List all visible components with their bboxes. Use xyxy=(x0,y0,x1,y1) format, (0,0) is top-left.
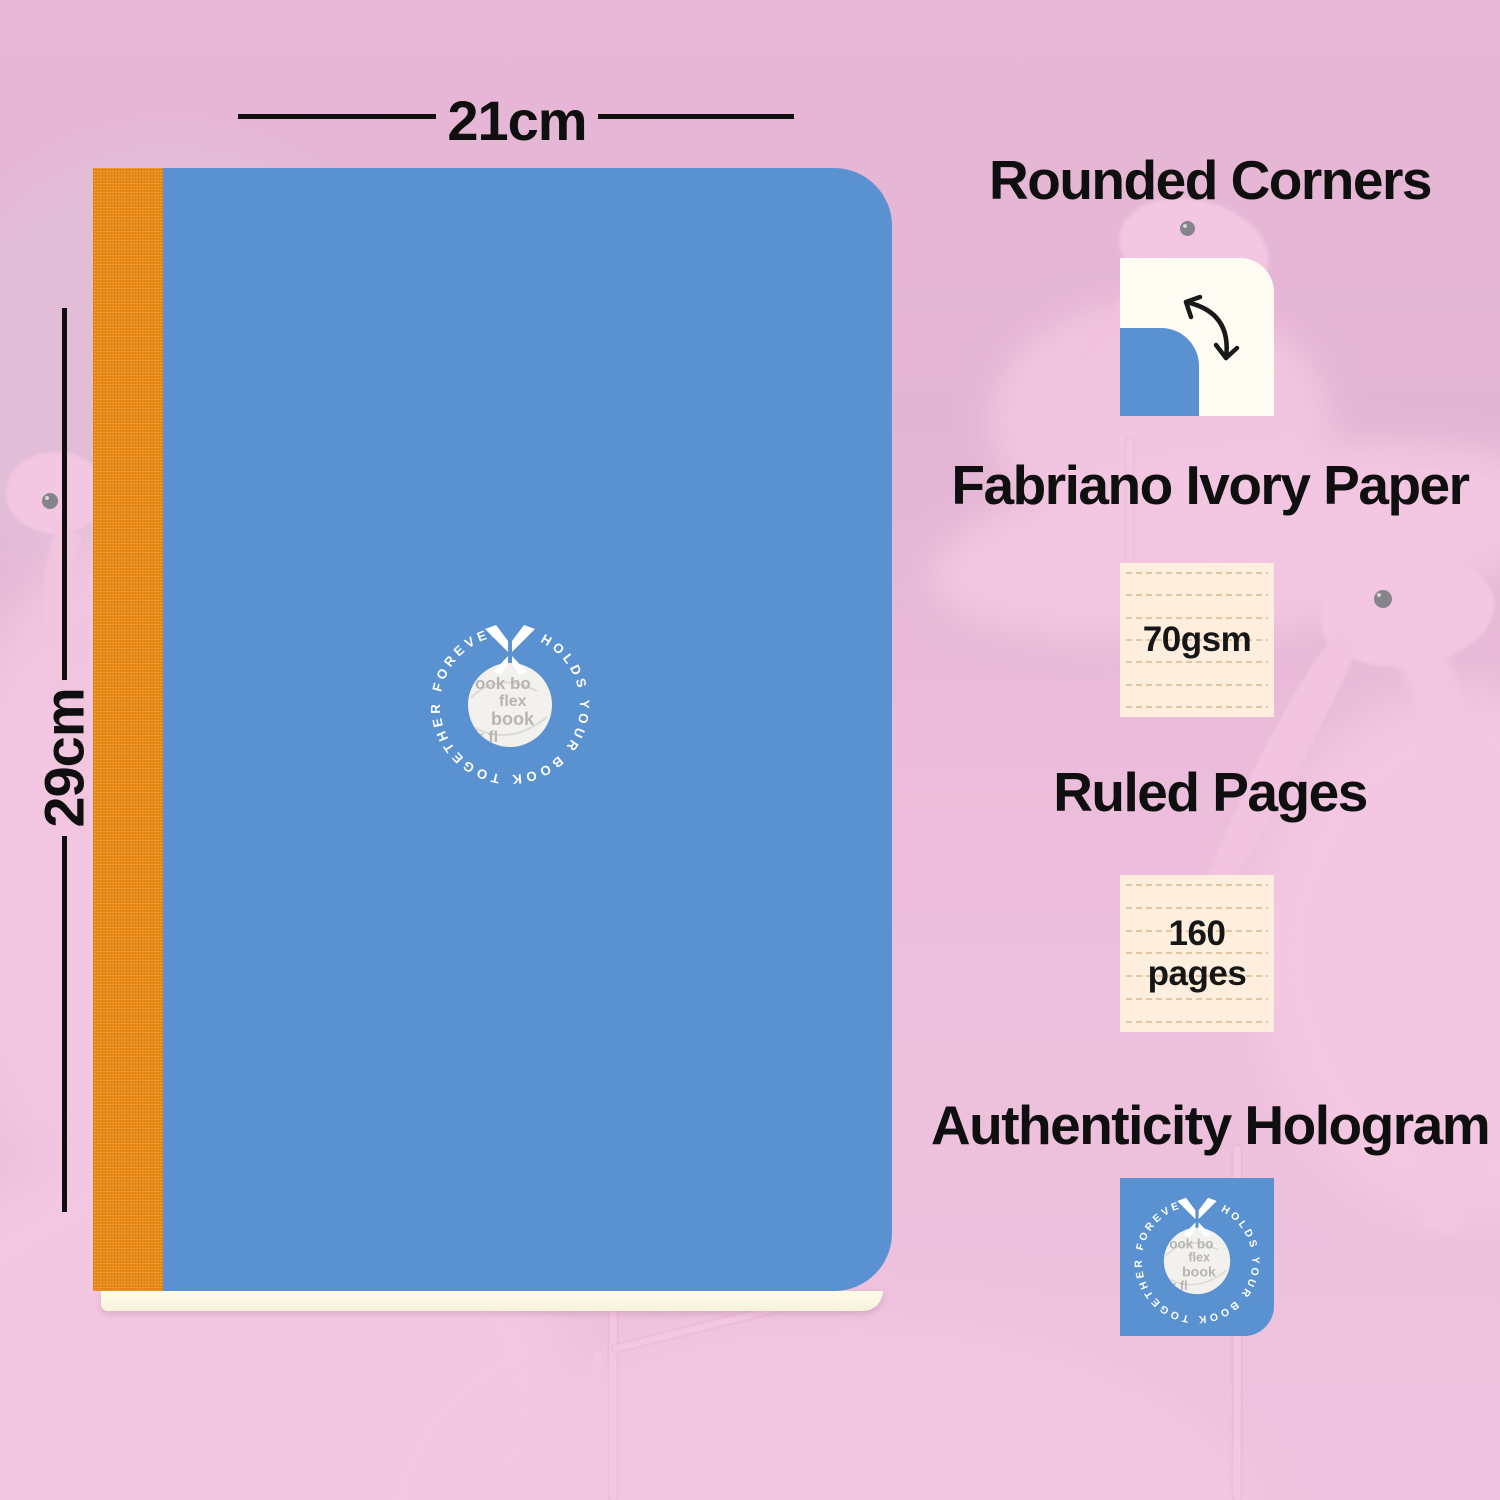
flamingo-eye-upper-right xyxy=(1180,221,1195,236)
svg-text:book: book xyxy=(1182,1265,1216,1281)
width-dimension-line-left xyxy=(238,114,436,119)
page-count-tile: 160 pages xyxy=(1120,875,1274,1032)
svg-text:ook bo: ook bo xyxy=(475,674,531,693)
page-count-value: 160 pages xyxy=(1120,914,1274,994)
notebook-page-edges xyxy=(101,1291,883,1311)
flamingo-eye-right xyxy=(1374,590,1392,608)
svg-text:ook bo: ook bo xyxy=(1169,1236,1213,1251)
paper-weight-tile: 70gsm xyxy=(1120,563,1274,717)
feature-title-paper: Fabriano Ivory Paper xyxy=(920,455,1500,515)
width-dimension-label: 21cm xyxy=(436,88,598,153)
svg-text:flex: flex xyxy=(1188,1251,1210,1265)
flamingo-body-bottom-mid xyxy=(440,1320,1260,1500)
feature-title-hologram: Authenticity Hologram xyxy=(920,1095,1500,1155)
flamingo-head-left xyxy=(6,452,106,534)
curved-arrow-icon xyxy=(1178,290,1246,370)
paper-weight-value: 70gsm xyxy=(1120,620,1274,660)
flamingo-eye-left xyxy=(42,493,58,509)
product-infographic: 21cm 29cm ook bo flex book x fl HOLDS YO… xyxy=(0,0,1500,1500)
height-dimension-line-top xyxy=(62,308,67,680)
notebook-front-cover: ook bo flex book x fl HOLDS YOUR BOOK TO… xyxy=(93,168,892,1291)
svg-text:book: book xyxy=(491,709,535,729)
svg-text:flex: flex xyxy=(499,693,527,710)
cover-hologram-logo: ook bo flex book x fl HOLDS YOUR BOOK TO… xyxy=(415,605,605,795)
height-dimension-label: 29cm xyxy=(32,688,97,827)
feature-title-ruled-pages: Ruled Pages xyxy=(920,762,1500,822)
notebook-fabric-spine xyxy=(93,168,163,1291)
feature-title-rounded-corners: Rounded Corners xyxy=(920,150,1500,210)
rounded-corners-icon-tile xyxy=(1120,258,1274,416)
width-dimension-line-right xyxy=(598,114,794,119)
svg-text:x fl: x fl xyxy=(475,729,498,746)
hologram-sticker-logo: ook bo flex book x fl HOLDS YOUR BOOK TO… xyxy=(1122,1182,1272,1332)
height-dimension-line-bottom xyxy=(62,836,67,1212)
svg-text:x fl: x fl xyxy=(1169,1279,1187,1293)
authenticity-hologram-tile: ook bo flex book x fl HOLDS YOUR BOOK TO… xyxy=(1120,1178,1274,1336)
flamingo-leg-below-notebook xyxy=(609,1300,617,1500)
